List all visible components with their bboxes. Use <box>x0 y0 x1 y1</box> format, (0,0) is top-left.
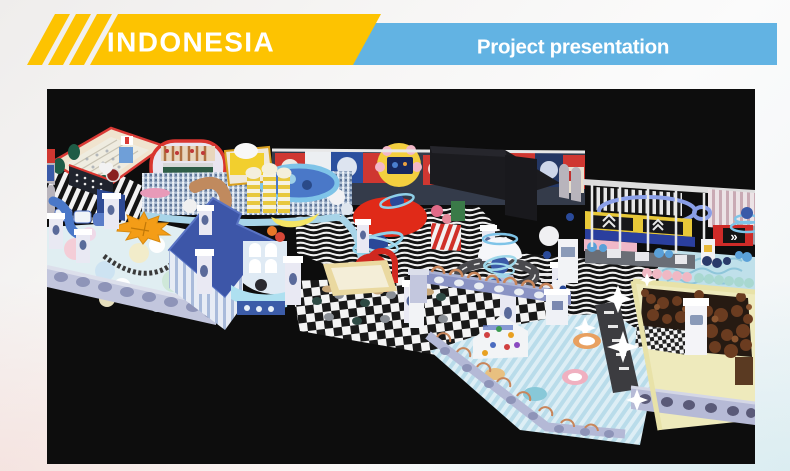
svg-text:Project presentation: Project presentation <box>477 36 669 59</box>
svg-text:INDONESIA: INDONESIA <box>107 27 275 58</box>
